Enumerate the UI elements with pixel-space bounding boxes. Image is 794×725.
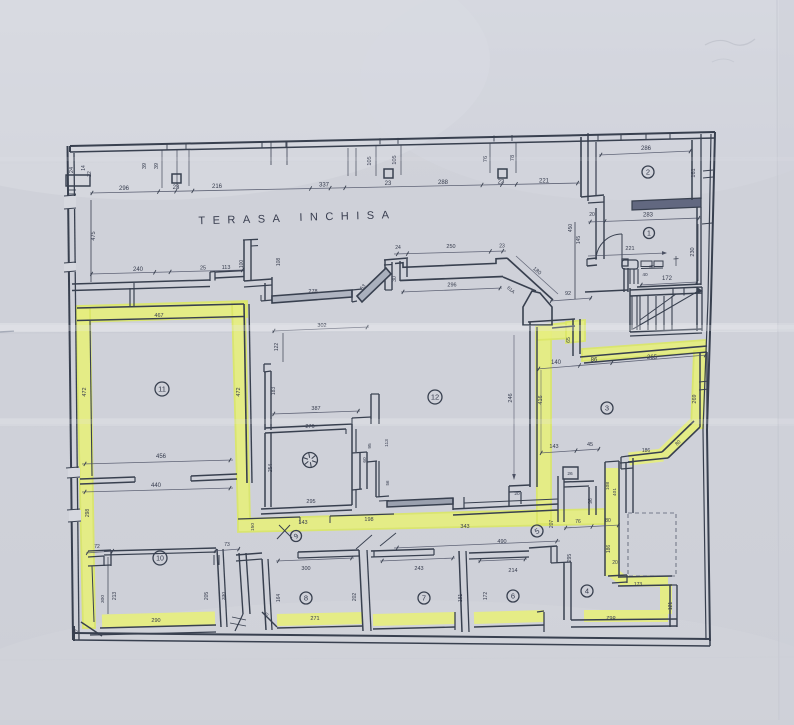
svg-text:100: 100 (239, 260, 245, 269)
svg-text:4: 4 (585, 587, 589, 596)
svg-text:240: 240 (133, 267, 144, 273)
svg-text:161: 161 (691, 168, 697, 177)
svg-text:96: 96 (588, 498, 594, 504)
svg-text:269: 269 (692, 394, 698, 403)
svg-text:65: 65 (566, 337, 572, 343)
svg-text:2: 2 (646, 168, 650, 177)
svg-text:300: 300 (301, 566, 310, 572)
svg-text:20: 20 (589, 212, 595, 218)
svg-text:164: 164 (276, 594, 282, 603)
svg-text:172: 172 (662, 276, 673, 282)
svg-text:288: 288 (438, 180, 449, 186)
svg-text:202: 202 (352, 593, 358, 602)
svg-text:296: 296 (119, 186, 130, 192)
svg-text:472: 472 (236, 387, 242, 396)
svg-text:271: 271 (310, 616, 319, 622)
svg-text:295: 295 (567, 554, 573, 563)
svg-text:216: 216 (212, 184, 223, 190)
svg-text:243: 243 (414, 566, 423, 572)
svg-text:143: 143 (549, 444, 558, 450)
svg-text:401: 401 (612, 488, 618, 496)
svg-text:265: 265 (647, 355, 658, 361)
svg-text:113: 113 (222, 265, 231, 271)
svg-text:72: 72 (94, 544, 100, 550)
svg-text:186: 186 (642, 448, 651, 454)
svg-text:221: 221 (625, 246, 634, 252)
svg-text:108: 108 (276, 258, 282, 267)
svg-text:39: 39 (154, 163, 160, 169)
svg-text:45: 45 (587, 442, 593, 448)
svg-text:298: 298 (85, 509, 91, 518)
svg-text:172: 172 (483, 592, 489, 601)
svg-text:22: 22 (87, 171, 93, 177)
svg-text:TERASA: TERASA (198, 213, 287, 227)
svg-text:183: 183 (271, 387, 277, 396)
svg-text:300: 300 (100, 595, 106, 603)
svg-text:145: 145 (576, 236, 582, 245)
svg-text:276: 276 (305, 424, 314, 430)
svg-text:20: 20 (514, 491, 520, 497)
svg-text:246: 246 (508, 393, 514, 402)
svg-text:290: 290 (151, 618, 160, 624)
svg-text:862: 862 (606, 614, 615, 620)
svg-text:23: 23 (173, 185, 180, 191)
svg-text:221: 221 (539, 179, 550, 185)
svg-text:207: 207 (549, 520, 555, 529)
svg-text:80: 80 (649, 264, 655, 270)
svg-text:24: 24 (69, 167, 75, 173)
svg-text:286: 286 (641, 146, 652, 152)
svg-text:73: 73 (224, 542, 230, 548)
svg-text:14: 14 (81, 165, 87, 171)
svg-text:113: 113 (384, 439, 390, 447)
svg-text:472: 472 (82, 387, 88, 396)
svg-text:11: 11 (158, 385, 166, 394)
svg-text:7: 7 (422, 594, 426, 603)
svg-text:150: 150 (250, 523, 256, 531)
svg-text:23: 23 (385, 181, 392, 187)
svg-text:450: 450 (568, 224, 574, 233)
svg-text:12: 12 (431, 393, 439, 402)
svg-text:254: 254 (268, 464, 274, 473)
svg-text:387: 387 (311, 406, 320, 412)
svg-text:60: 60 (362, 457, 368, 463)
svg-text:40: 40 (642, 272, 648, 278)
svg-text:56: 56 (385, 480, 390, 486)
svg-text:440: 440 (151, 483, 162, 489)
svg-text:95: 95 (367, 443, 373, 449)
svg-text:230: 230 (690, 247, 696, 256)
svg-text:278: 278 (308, 289, 317, 295)
svg-text:108: 108 (605, 482, 611, 490)
svg-text:1: 1 (647, 231, 651, 238)
svg-text:140: 140 (551, 360, 562, 366)
svg-text:181: 181 (458, 594, 464, 603)
svg-text:214: 214 (508, 568, 517, 574)
svg-text:122: 122 (274, 343, 280, 352)
svg-text:10: 10 (156, 556, 164, 563)
svg-text:92: 92 (565, 291, 571, 297)
svg-text:456: 456 (156, 454, 167, 460)
svg-text:295: 295 (306, 499, 315, 505)
svg-text:186: 186 (606, 545, 612, 554)
svg-text:8: 8 (304, 594, 308, 603)
svg-text:330: 330 (221, 592, 227, 600)
svg-text:143: 143 (298, 520, 307, 526)
svg-text:23: 23 (499, 244, 505, 250)
svg-text:250: 250 (446, 244, 455, 250)
svg-text:213: 213 (112, 592, 118, 601)
svg-text:205: 205 (204, 592, 210, 601)
svg-text:30: 30 (392, 276, 398, 282)
svg-text:76: 76 (575, 519, 581, 525)
svg-text:490: 490 (497, 539, 506, 545)
svg-text:198: 198 (364, 517, 373, 523)
svg-text:121: 121 (668, 602, 674, 611)
svg-text:283: 283 (643, 213, 654, 219)
svg-text:26: 26 (567, 471, 573, 477)
svg-text:296: 296 (447, 283, 456, 289)
svg-text:25: 25 (200, 266, 206, 272)
svg-text:39: 39 (142, 163, 148, 169)
svg-text:86: 86 (591, 358, 598, 364)
svg-text:20: 20 (612, 560, 618, 566)
svg-text:467: 467 (154, 313, 163, 319)
svg-text:337: 337 (319, 183, 330, 189)
svg-text:3: 3 (605, 404, 609, 413)
svg-text:475: 475 (91, 231, 97, 240)
svg-text:24: 24 (395, 245, 401, 251)
svg-text:23: 23 (498, 180, 505, 186)
svg-text:173: 173 (634, 582, 643, 588)
svg-text:6: 6 (511, 592, 515, 601)
svg-text:80: 80 (605, 518, 611, 524)
svg-text:343: 343 (460, 524, 469, 530)
